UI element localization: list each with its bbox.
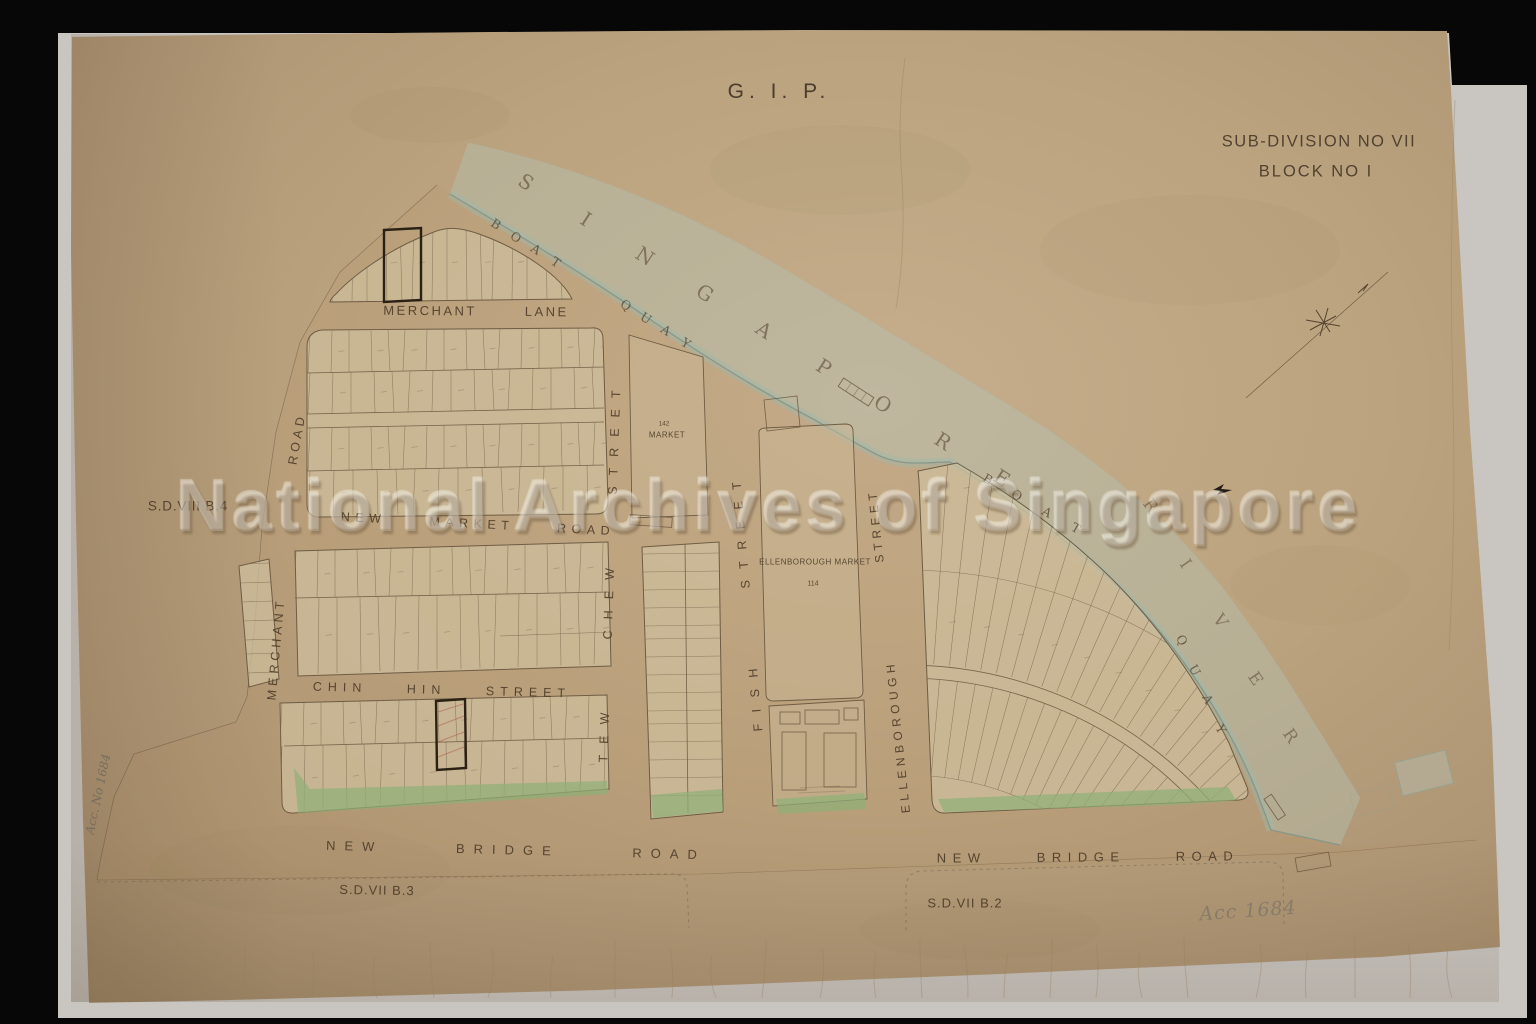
landmark-ellenborough-market: ELLENBOROUGH MARKET [759,558,871,567]
archival-map-scan: G. I. P. SUB-DIVISION NO VII BLOCK NO I … [0,0,1536,1024]
map-title: G. I. P. [728,80,831,104]
street-label-merchant-lane: MERCHANT LANE [383,303,569,320]
subdivision-number: SUB-DIVISION NO VII [1222,133,1416,152]
landmark-market: MARKET [649,431,685,440]
block-new-market-chin-hin [295,542,611,676]
block-number: BLOCK NO I [1259,163,1373,182]
street-label-new-bridge-road-east: NEW BRIDGE ROAD [937,848,1240,865]
archive-watermark: National Archives of Singapore [176,466,1362,548]
landmark-ellenborough-market-lot: 114 [807,581,818,588]
landmark-market-lot: 142 [659,421,670,428]
subdivision-ref-south-east: S.D.VII B.2 [927,896,1002,911]
subdivision-ref-south-west: S.D.VII B.3 [339,882,415,898]
